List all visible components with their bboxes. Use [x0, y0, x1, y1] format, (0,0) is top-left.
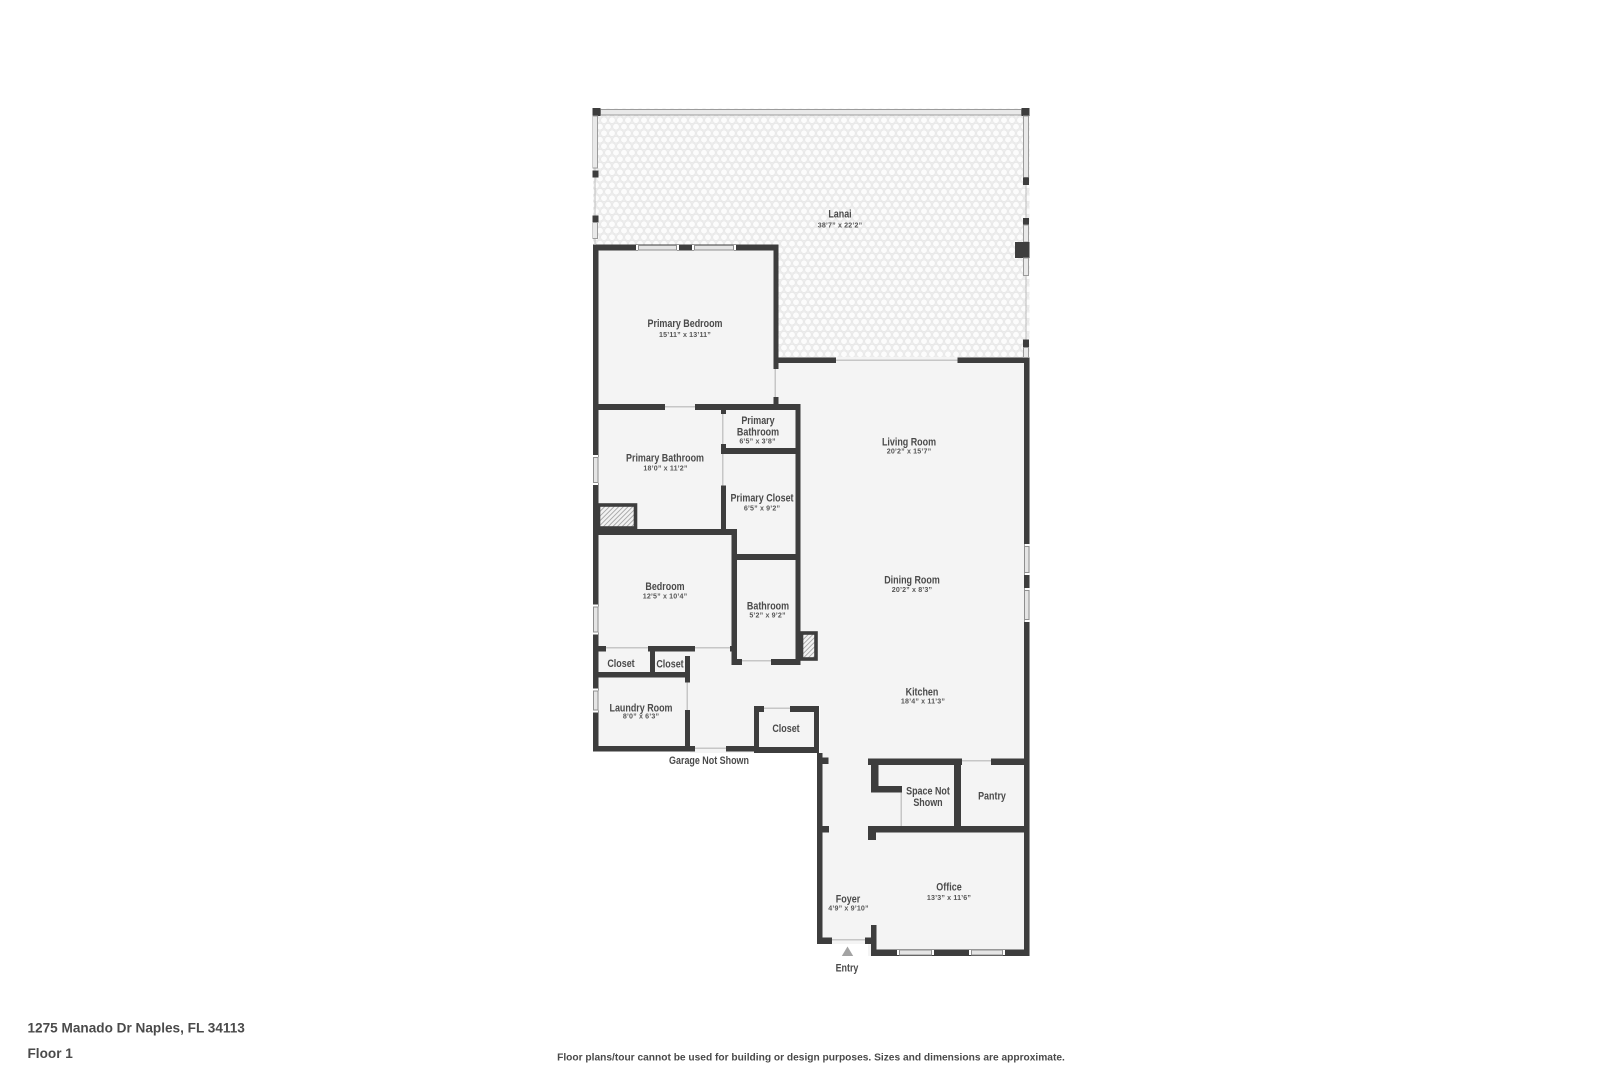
svg-text:Primary: Primary: [741, 415, 774, 427]
svg-text:Entry: Entry: [836, 963, 859, 975]
svg-text:6’5” x 9’2”: 6’5” x 9’2”: [744, 505, 781, 513]
svg-text:Closet: Closet: [607, 658, 635, 670]
svg-text:38’7” x 22’2”: 38’7” x 22’2”: [818, 222, 863, 230]
svg-text:Primary Bedroom: Primary Bedroom: [648, 318, 723, 330]
svg-text:Lanai: Lanai: [828, 209, 851, 221]
svg-text:4’9” x 9’10”: 4’9” x 9’10”: [828, 905, 869, 913]
svg-text:Space Not: Space Not: [906, 786, 950, 798]
svg-text:Primary Bathroom: Primary Bathroom: [626, 453, 704, 465]
svg-text:Office: Office: [936, 882, 961, 894]
svg-text:Closet: Closet: [772, 723, 800, 735]
svg-text:Floor plans/tour cannot be use: Floor plans/tour cannot be used for buil…: [557, 1053, 1065, 1064]
svg-text:Closet: Closet: [656, 659, 684, 671]
svg-text:8’0” x 6’3”: 8’0” x 6’3”: [623, 713, 660, 721]
svg-text:13’3” x 11’6”: 13’3” x 11’6”: [927, 894, 971, 902]
svg-text:Dining Room: Dining Room: [884, 575, 940, 587]
svg-text:Garage Not Shown: Garage Not Shown: [669, 755, 749, 767]
svg-text:20’2” x 8’3”: 20’2” x 8’3”: [892, 586, 933, 594]
svg-text:Primary Closet: Primary Closet: [730, 493, 793, 505]
svg-text:Floor 1: Floor 1: [28, 1046, 74, 1061]
svg-text:18’0” x 11’2”: 18’0” x 11’2”: [643, 465, 687, 473]
svg-text:12’5” x 10’4”: 12’5” x 10’4”: [643, 593, 688, 601]
svg-text:Shown: Shown: [913, 797, 942, 809]
svg-text:15’11” x 13’11”: 15’11” x 13’11”: [659, 331, 711, 339]
svg-text:1275 Manado Dr Naples, FL 3411: 1275 Manado Dr Naples, FL 34113: [28, 1021, 246, 1036]
svg-text:18’4” x 11’3”: 18’4” x 11’3”: [901, 698, 945, 706]
svg-text:20’2” x 15’7”: 20’2” x 15’7”: [887, 448, 932, 456]
svg-text:6’5” x 3’8”: 6’5” x 3’8”: [739, 438, 776, 446]
svg-text:Bedroom: Bedroom: [645, 581, 684, 593]
svg-text:Pantry: Pantry: [978, 791, 1006, 803]
svg-text:5’2” x 9’2”: 5’2” x 9’2”: [749, 612, 786, 620]
